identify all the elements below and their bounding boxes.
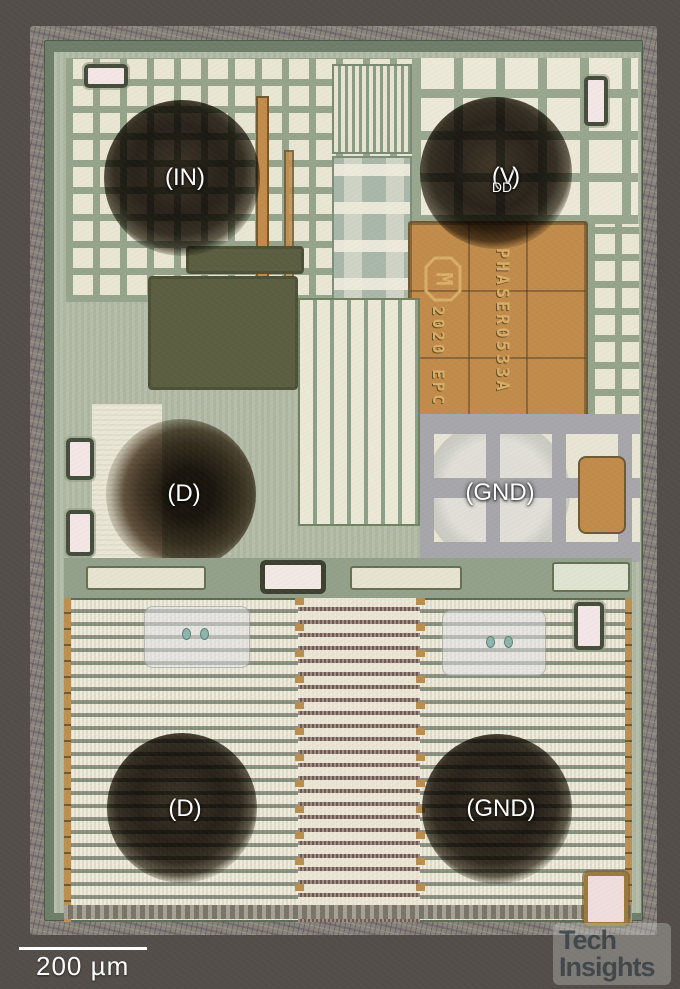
edge-pad-left-1 [66, 438, 94, 480]
finger-caps-left [295, 598, 304, 922]
die-marking-year: 2020 EPC [429, 306, 448, 407]
edge-pad-left-2 [66, 510, 94, 556]
watermark-line2: Insights [559, 954, 671, 981]
label-vdd: (VDD) [492, 163, 512, 193]
label-drain-bottom: (D) [168, 795, 201, 823]
probe-patch-left [144, 606, 250, 668]
center-cell-column [332, 156, 412, 300]
probe-mark-icon [486, 636, 495, 648]
edge-pad-right-mid [574, 602, 604, 650]
divider-bar-2 [350, 566, 462, 590]
label-vdd-post: ) [512, 163, 520, 191]
probe-mark-icon [200, 628, 209, 640]
manufacturer-octagon-logo: M [424, 256, 462, 302]
divider-bar-3 [552, 562, 630, 592]
die-photo: M 2020 EPC PHASER0533A (IN) (VDD) [0, 0, 680, 989]
array-bottom-seam [64, 905, 632, 919]
label-gnd-bottom: (GND) [466, 795, 535, 823]
gate-driver-finger-block [298, 298, 420, 526]
copper-square-array [148, 276, 298, 390]
array-center-channel-texture [298, 598, 420, 922]
probe-mark-icon [182, 628, 191, 640]
logo-letter: M [431, 272, 456, 285]
die-marking-part-number: PHASER0533A [492, 248, 512, 394]
edge-pad-top-left [84, 64, 128, 88]
divider-framed-pad [260, 560, 326, 594]
watermark-line1: Tech [559, 927, 671, 954]
techinsights-watermark: Tech Insights [553, 923, 671, 985]
label-vdd-sub: DD [492, 179, 512, 195]
label-in: (IN) [165, 164, 205, 192]
probe-mark-icon [504, 636, 513, 648]
scale-bar-label: 200 µm [36, 951, 129, 982]
copper-tab-right [578, 456, 626, 534]
scale-bar-line [19, 947, 147, 950]
divider-bar-1 [86, 566, 206, 590]
top-center-comb [332, 64, 412, 154]
label-gnd-mid: (GND) [465, 479, 534, 507]
label-drain-mid: (D) [167, 480, 200, 508]
array-gold-edge-left [64, 598, 71, 922]
edge-pad-top-right [584, 76, 608, 126]
finger-caps-right [416, 598, 425, 922]
edge-pad-bottom-right [584, 872, 628, 926]
